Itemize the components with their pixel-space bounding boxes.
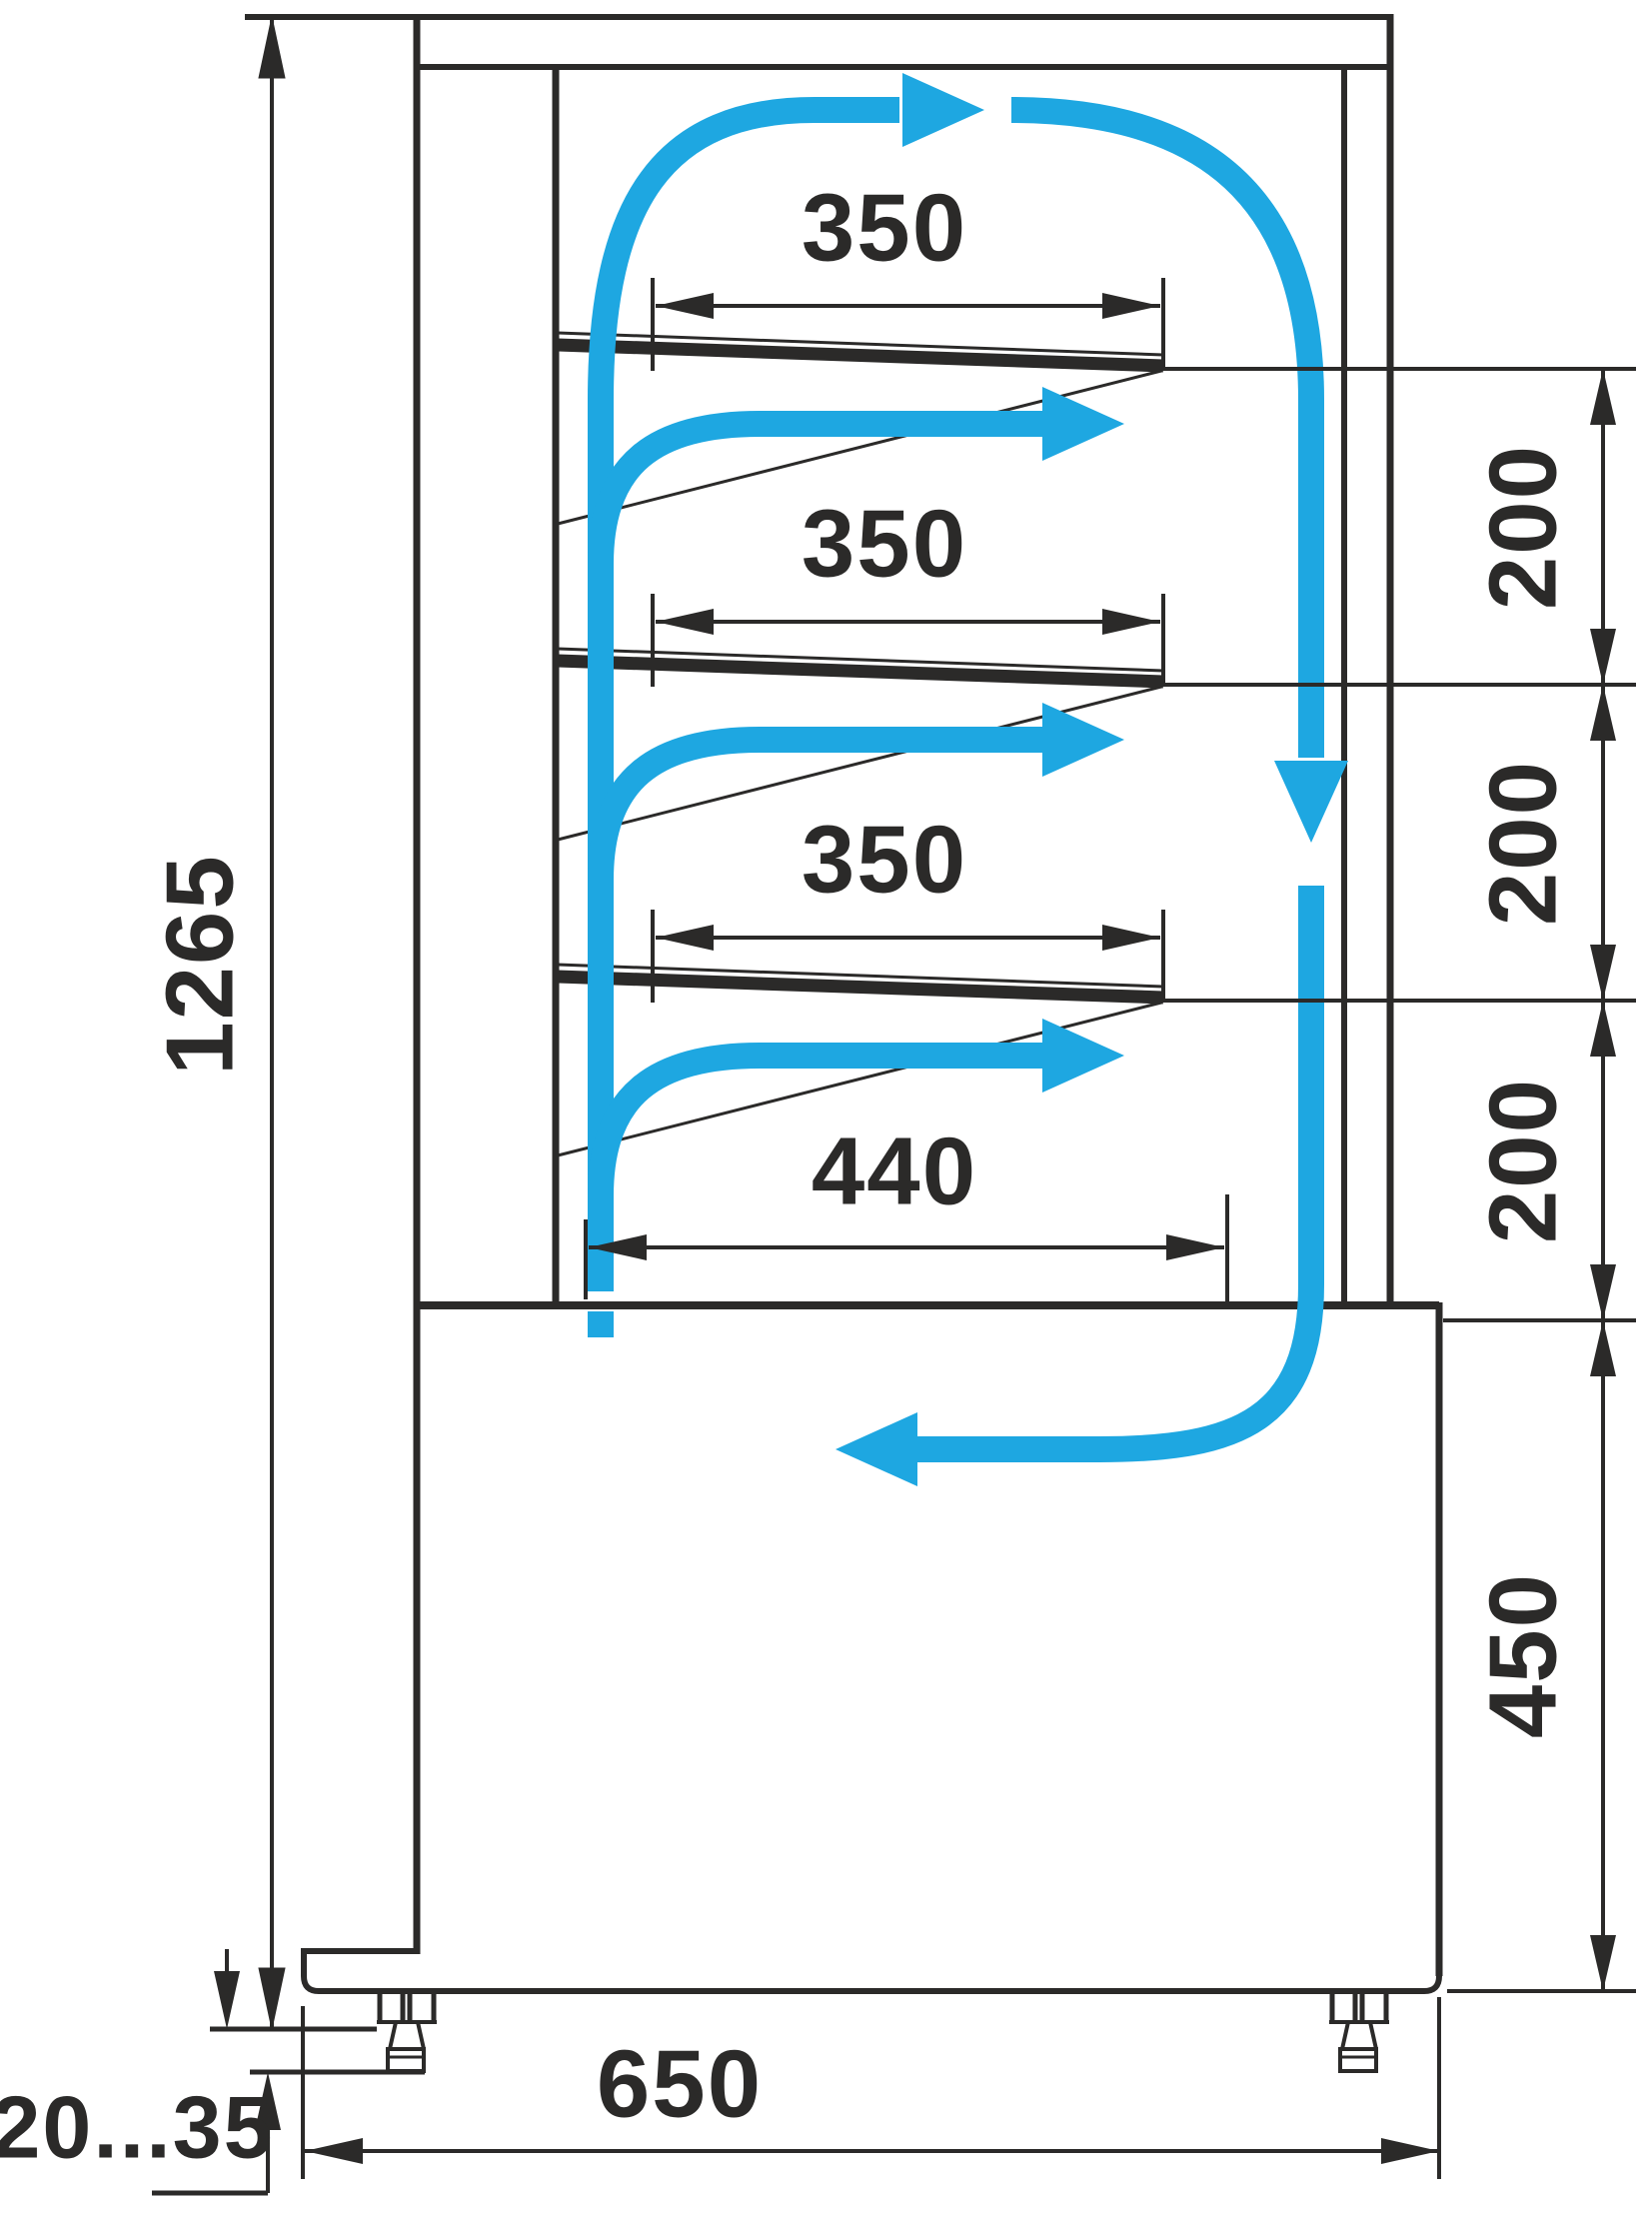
arrowhead-left-icon: [656, 609, 714, 635]
shelf-3-body: [558, 977, 1163, 998]
drawing-page: 1265 350 350 350 440 200 200 200 450 650…: [0, 0, 1652, 2213]
right-foot: [1329, 1991, 1389, 2071]
arrowhead-up-icon: [1590, 369, 1616, 425]
right-foot-screw-cone: [1342, 2022, 1376, 2049]
arrowhead-up-icon: [259, 17, 285, 78]
dim-total-height: [259, 17, 285, 2029]
arrowhead-right-icon: [1102, 609, 1160, 635]
arrowhead-down-icon: [1590, 1935, 1616, 1991]
label-shelf-gap-2: 200: [1470, 760, 1577, 926]
shelf-2-body: [558, 661, 1163, 682]
dim-overall-depth: [303, 1997, 1439, 2179]
label-overall-depth: 650: [597, 2031, 763, 2138]
arrowhead-up-icon: [1590, 1001, 1616, 1057]
arrowhead-right-icon: [1102, 293, 1160, 319]
arrowhead-left-icon: [305, 2138, 363, 2164]
label-shelf-2-depth: 350: [802, 491, 967, 598]
label-shelf-gap-3: 200: [1470, 1078, 1577, 1243]
left-foot-screw-cone: [390, 2022, 424, 2049]
arrowhead-left-icon: [656, 293, 714, 319]
arrowhead-right-icon: [1166, 1234, 1224, 1260]
label-shelf-3-depth: 350: [802, 807, 967, 914]
label-shelf-1-depth: 350: [802, 175, 967, 282]
label-total-height: 1265: [147, 854, 254, 1076]
left-foot: [377, 1991, 437, 2071]
airflow-arrow-top: [902, 73, 984, 147]
airflow-riser-duct: [601, 110, 899, 1291]
dimension-labels: 1265 350 350 350 440 200 200 200 450 650…: [0, 175, 1577, 2177]
arrowhead-left-icon: [656, 925, 714, 951]
label-bottom-shelf-depth: 440: [812, 1118, 977, 1225]
airflow-arrow-down: [1274, 761, 1348, 843]
airflow-arrow-branch-2: [1042, 703, 1124, 777]
right-foot-pad: [1340, 2049, 1376, 2071]
arrowhead-right-icon: [1381, 2138, 1439, 2164]
arrowhead-down-icon: [1590, 629, 1616, 685]
arrowhead-down-icon: [214, 1971, 240, 2029]
base-bottom-outline: [304, 1951, 1439, 1991]
shelf-1-body: [558, 345, 1163, 366]
label-leg-adjustment: 20...35: [0, 2078, 275, 2177]
label-shelf-gap-1: 200: [1470, 444, 1577, 610]
arrowhead-down-icon: [1590, 945, 1616, 1001]
arrowhead-down-icon: [1590, 1264, 1616, 1320]
arrowhead-down-icon: [259, 1968, 285, 2029]
left-foot-pad: [388, 2049, 424, 2071]
display-case-section-drawing: 1265 350 350 350 440 200 200 200 450 650…: [0, 0, 1652, 2213]
arrowhead-right-icon: [1102, 925, 1160, 951]
arrowhead-up-icon: [1590, 685, 1616, 741]
airflow-arrow-branch-3: [1042, 1019, 1124, 1093]
airflow: [601, 73, 1348, 1486]
airflow-arrow-branch-1: [1042, 387, 1124, 461]
arrowhead-up-icon: [1590, 1320, 1616, 1376]
airflow-arrow-return: [835, 1412, 917, 1486]
label-base-height: 450: [1470, 1572, 1577, 1738]
